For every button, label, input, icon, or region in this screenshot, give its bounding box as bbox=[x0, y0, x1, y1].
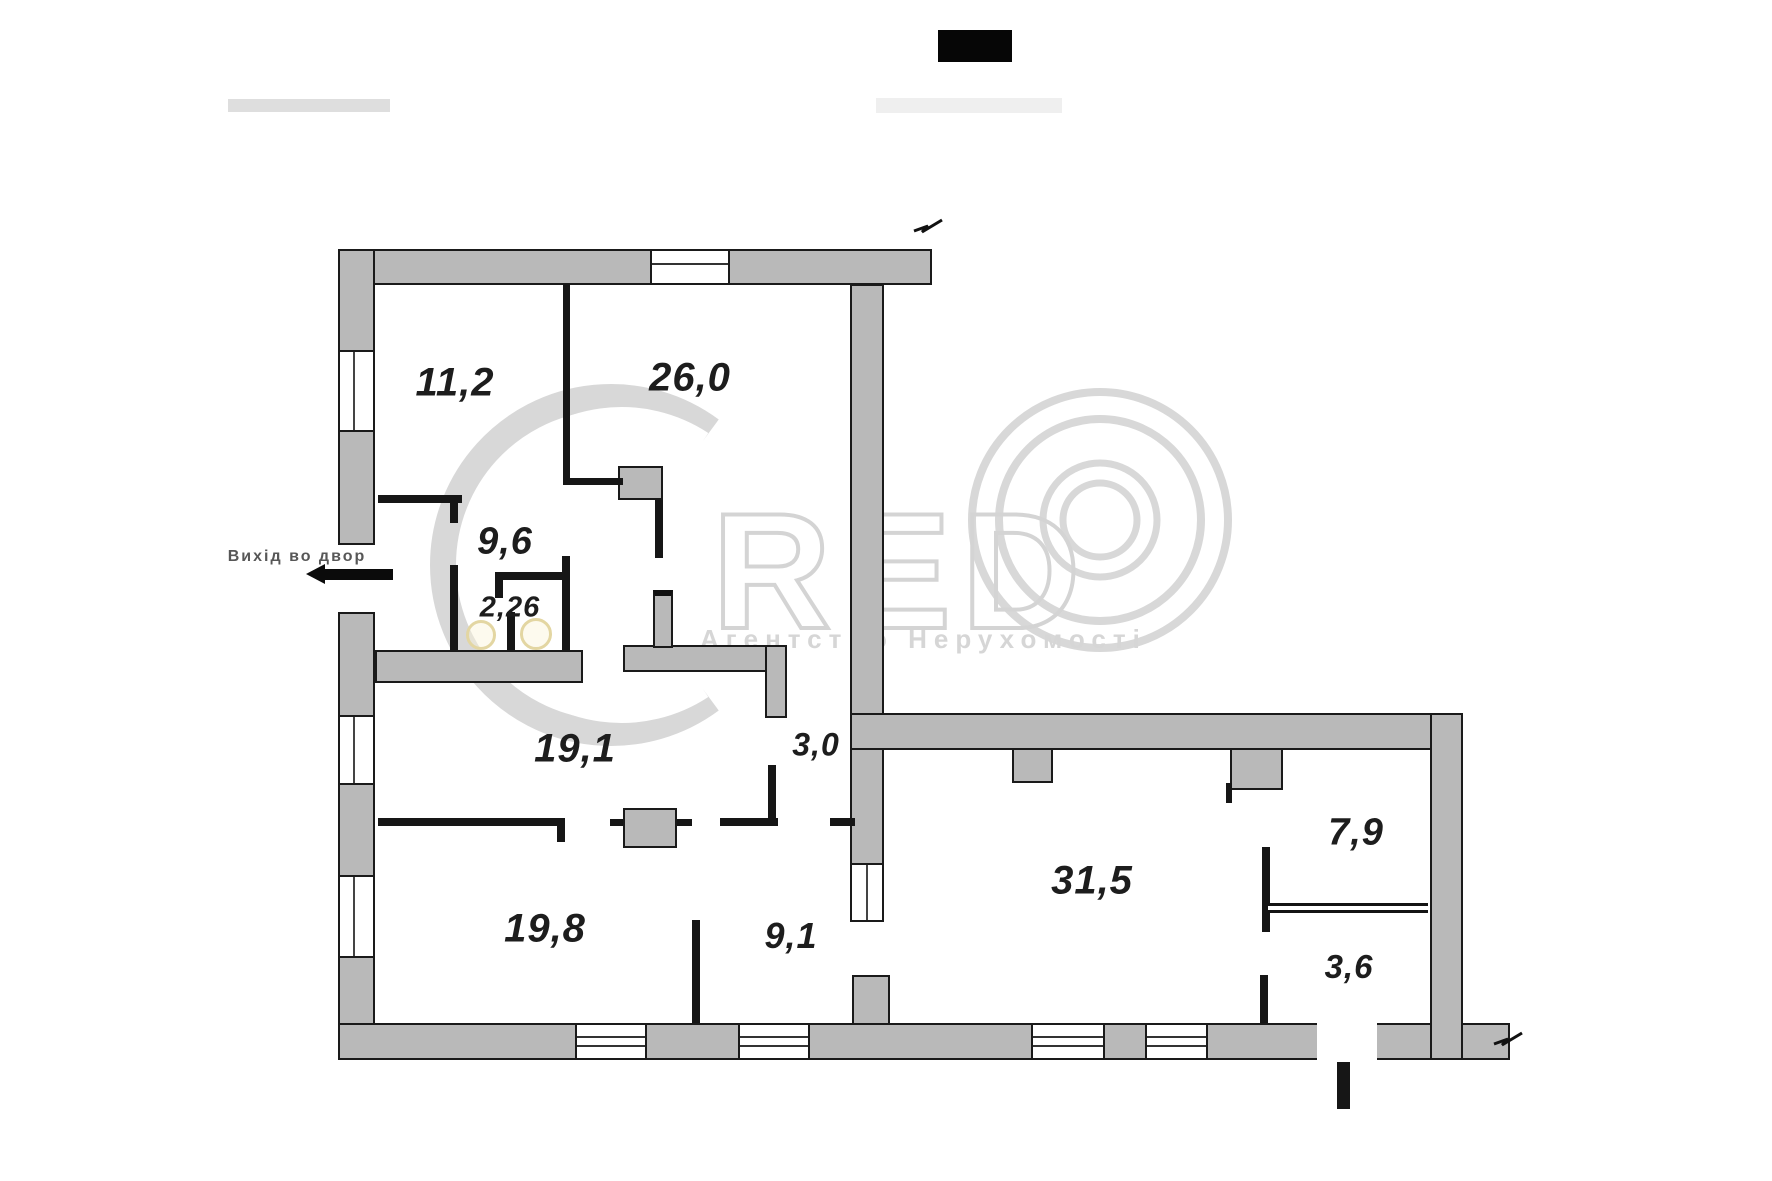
wall-partition bbox=[830, 818, 855, 826]
room-area-label: 11,2 bbox=[416, 361, 495, 406]
wall-spine-pillar bbox=[852, 975, 890, 1025]
room-area-label: 19,8 bbox=[504, 907, 586, 952]
vent-box bbox=[618, 466, 663, 500]
exit-arrow-head-icon bbox=[306, 564, 325, 584]
entry-door-opening bbox=[1317, 1021, 1377, 1062]
window-bottom-1 bbox=[575, 1023, 647, 1060]
stove-tick bbox=[677, 819, 692, 826]
room-area-label: 3,6 bbox=[1325, 948, 1374, 986]
window-bottom-4 bbox=[1145, 1023, 1208, 1060]
wall-partition-double bbox=[1268, 903, 1428, 913]
wall-right bbox=[1430, 713, 1463, 1060]
room-area-label: 26,0 bbox=[649, 356, 731, 401]
wall-left bbox=[338, 430, 375, 545]
wc-wall-right bbox=[562, 556, 570, 650]
room-area-label: 9,1 bbox=[764, 915, 817, 957]
window-bottom-3 bbox=[1031, 1023, 1105, 1060]
room-area-label: 2,26 bbox=[480, 592, 540, 625]
wall-partition bbox=[563, 284, 570, 480]
door-spine bbox=[850, 863, 884, 922]
wall-rightwing-top bbox=[850, 713, 1463, 750]
wall-partition bbox=[378, 495, 462, 503]
wall-top bbox=[338, 249, 932, 285]
wall-partition bbox=[655, 500, 663, 558]
floor-plan-page: RED Агентство Нерухомості bbox=[0, 0, 1772, 1181]
wall-partition bbox=[378, 818, 565, 826]
wall-interior-thick bbox=[375, 650, 583, 683]
wall-partition bbox=[450, 503, 458, 523]
room-area-label: 9,6 bbox=[477, 521, 533, 564]
wall-left bbox=[338, 249, 375, 352]
room-area-label: 3,0 bbox=[792, 727, 839, 764]
window-left-2 bbox=[338, 715, 375, 785]
window-top bbox=[650, 249, 730, 285]
room-area-label: 31,5 bbox=[1051, 859, 1133, 904]
wc-fixture-icon bbox=[466, 620, 496, 650]
wall-left bbox=[338, 783, 375, 877]
door-jamb bbox=[653, 590, 673, 648]
room-area-label: 19,1 bbox=[534, 727, 616, 772]
exit-arrow-icon bbox=[325, 569, 393, 580]
wall-spine-vertical bbox=[850, 284, 884, 865]
wc-wall-top bbox=[500, 572, 570, 580]
door-jamb bbox=[557, 820, 565, 842]
window-bottom-2 bbox=[738, 1023, 810, 1060]
break-mark-icon bbox=[1492, 1028, 1526, 1050]
room-area-label: 7,9 bbox=[1328, 812, 1384, 855]
door-jamb bbox=[1012, 748, 1053, 783]
wall-left bbox=[338, 612, 375, 717]
wall-partition bbox=[1262, 847, 1270, 932]
door-jamb bbox=[1230, 748, 1283, 790]
wall-partition bbox=[692, 920, 700, 1023]
stove-symbol bbox=[623, 808, 677, 848]
window-left-1 bbox=[338, 350, 375, 432]
wall-interior-thick bbox=[765, 645, 787, 718]
wall-partition bbox=[768, 765, 776, 826]
wc-wall-left bbox=[450, 565, 458, 650]
window-left-3 bbox=[338, 875, 375, 958]
door-swing-mark bbox=[1226, 783, 1232, 803]
stove-tick bbox=[610, 819, 623, 826]
wall-interior-thick bbox=[623, 645, 787, 672]
break-mark-icon bbox=[912, 216, 946, 238]
wall-partition bbox=[563, 478, 623, 485]
wall-partition bbox=[1260, 975, 1268, 1023]
exit-label: Вихід во двор bbox=[228, 548, 367, 566]
